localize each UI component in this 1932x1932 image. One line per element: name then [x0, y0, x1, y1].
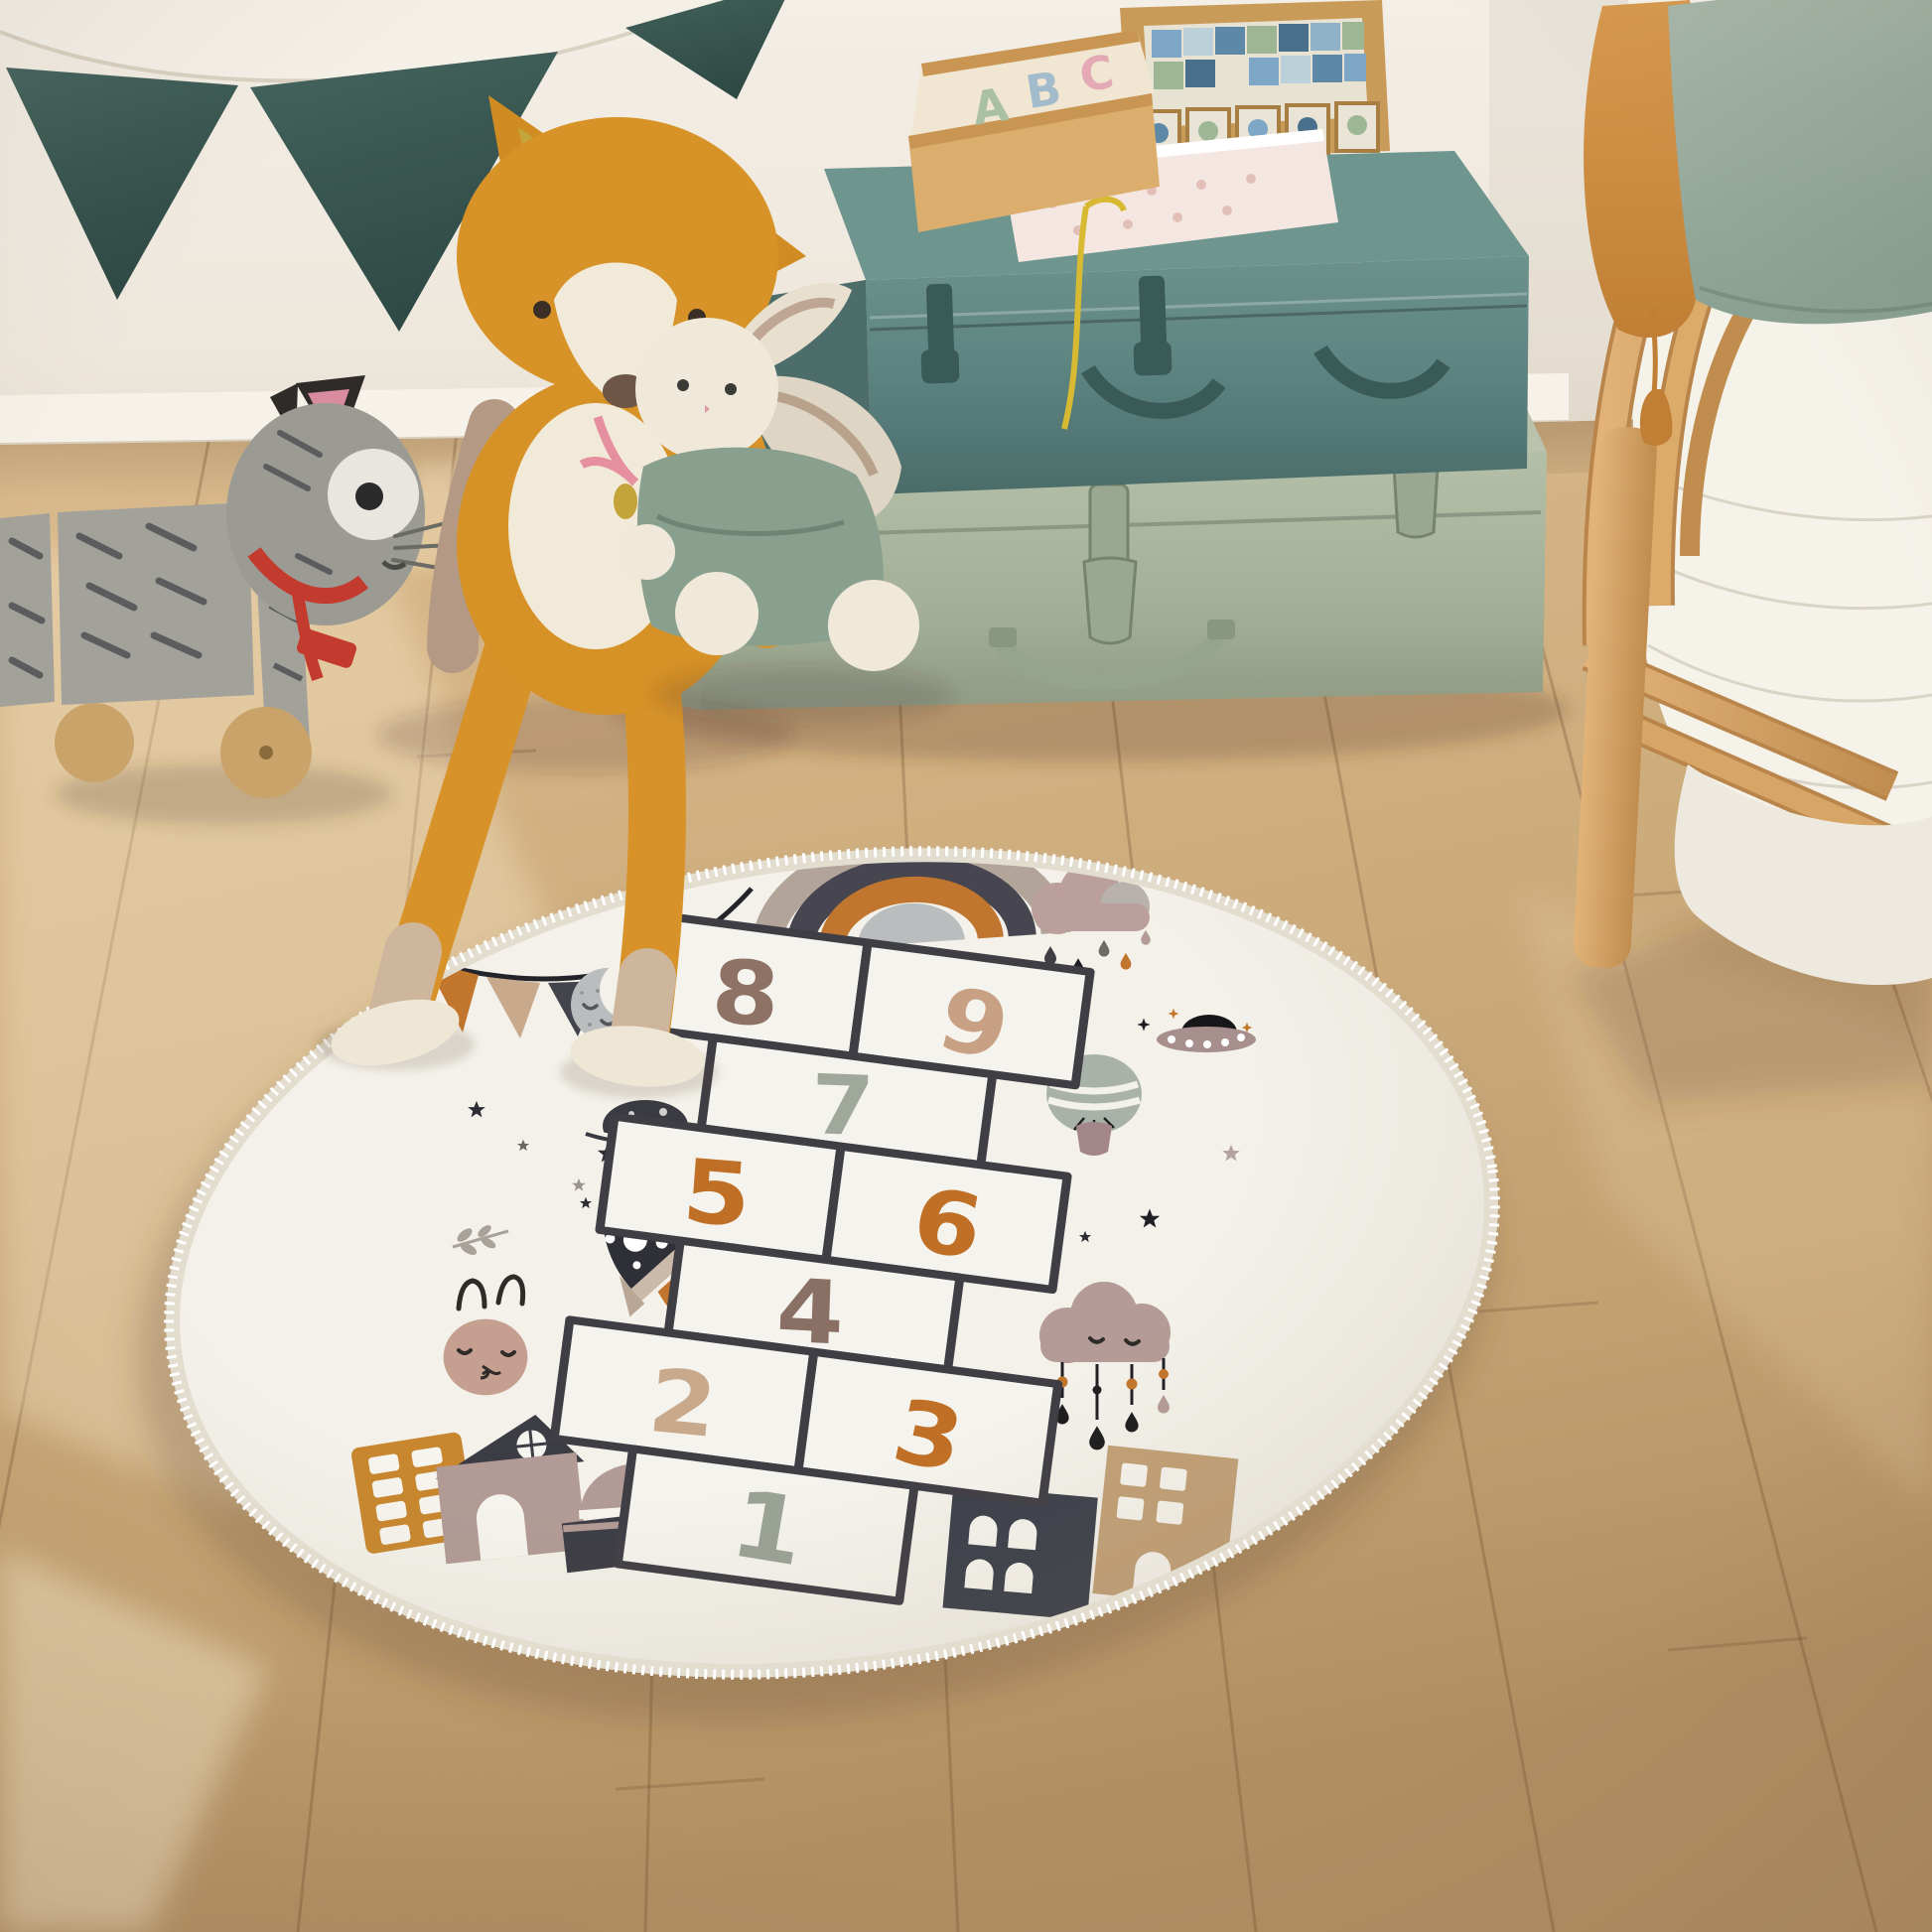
photo-vignette	[0, 0, 1932, 1932]
room-illustration: A B C	[0, 0, 1932, 1932]
kids-room-photo: A B C	[0, 0, 1932, 1932]
